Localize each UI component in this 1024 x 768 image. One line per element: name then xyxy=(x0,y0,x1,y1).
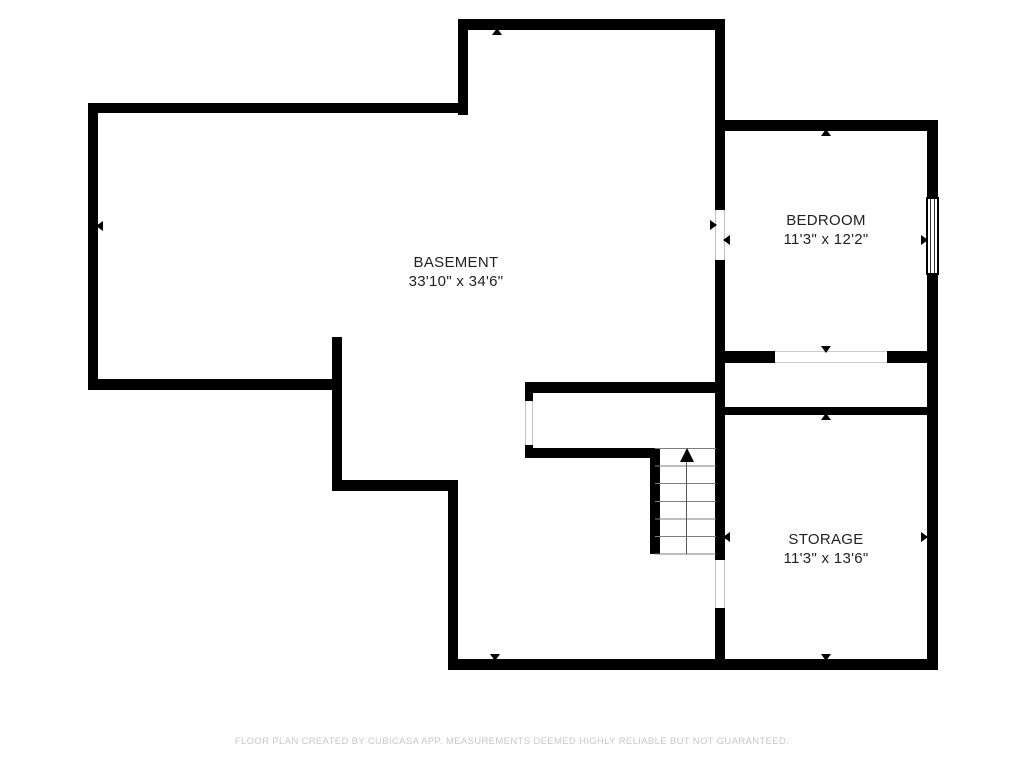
wall-basement-bottom xyxy=(88,379,342,390)
wall-center-upper xyxy=(715,19,725,210)
wall-bottom xyxy=(448,659,938,670)
room-label-basement: BASEMENT 33'10" x 34'6" xyxy=(356,253,556,291)
measurement-arrow-bedroom-bottom xyxy=(821,346,831,353)
basement-dimensions: 33'10" x 34'6" xyxy=(356,272,556,291)
storage-door-opening xyxy=(715,560,725,608)
measurement-arrow-storage-top xyxy=(821,413,831,420)
measurement-arrow-basement-bottom xyxy=(490,654,500,661)
bedroom-name: BEDROOM xyxy=(726,211,926,230)
measurement-arrow-basement-left xyxy=(96,221,103,231)
bedroom-wide-opening xyxy=(775,351,887,363)
wall-landing-doorpost-upper xyxy=(525,382,533,401)
floor-plan: BASEMENT 33'10" x 34'6" BEDROOM 11'3" x … xyxy=(0,0,1024,768)
wall-center-lower xyxy=(715,608,725,670)
window-pane-line xyxy=(930,199,931,273)
wall-basement-left xyxy=(88,103,98,390)
wall-landing-bottom xyxy=(525,448,653,458)
measurement-arrow-bedroom-top xyxy=(821,129,831,136)
measurement-arrow-storage-bottom xyxy=(821,654,831,661)
measurement-arrow-basement-right xyxy=(710,220,717,230)
wall-right-lower xyxy=(927,274,938,670)
room-label-bedroom: BEDROOM 11'3" x 12'2" xyxy=(726,211,926,249)
storage-name: STORAGE xyxy=(726,530,926,549)
stairs-direction-line xyxy=(686,460,687,554)
wall-upper-left xyxy=(458,19,468,115)
basement-name: BASEMENT xyxy=(356,253,556,272)
window-pane-line xyxy=(934,199,935,273)
bedroom-dimensions: 11'3" x 12'2" xyxy=(726,230,926,249)
wall-stub xyxy=(332,337,342,491)
room-label-storage: STORAGE 11'3" x 13'6" xyxy=(726,530,926,568)
wall-step xyxy=(332,480,458,491)
wall-lower-left xyxy=(448,480,458,670)
wall-bedroom-bottom-left xyxy=(715,351,775,363)
measurement-arrow-basement-top xyxy=(492,28,502,35)
wall-right-upper xyxy=(927,120,938,198)
storage-dimensions: 11'3" x 13'6" xyxy=(726,549,926,568)
wall-basement-top xyxy=(88,103,468,113)
wall-bedroom-bottom-right xyxy=(887,351,938,363)
disclaimer-text: FLOOR PLAN CREATED BY CUBICASA APP. MEAS… xyxy=(0,735,1024,749)
stairs-direction-up-arrow xyxy=(680,448,694,462)
landing-door-opening xyxy=(525,401,533,445)
wall-landing-top xyxy=(525,382,715,393)
